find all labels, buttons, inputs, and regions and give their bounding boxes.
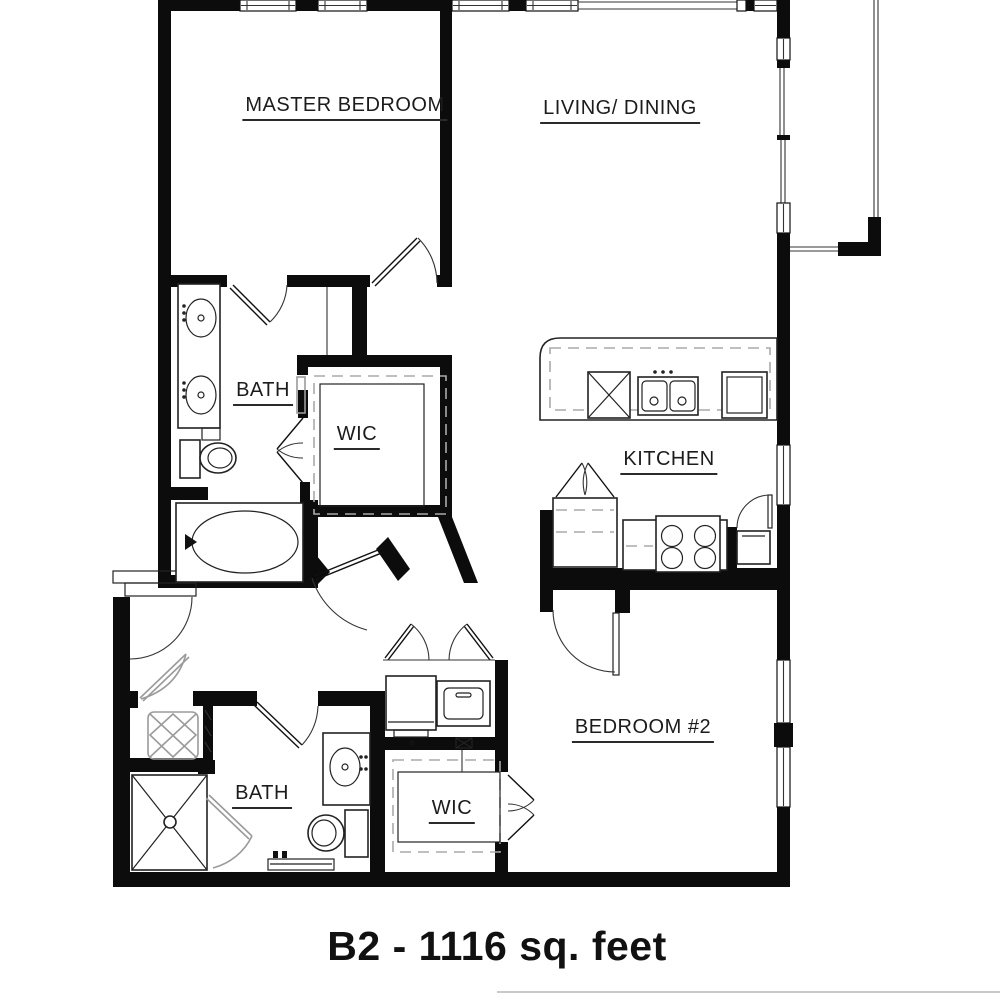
bath2-floor-vent [268, 851, 334, 870]
master-bedroom-door [372, 238, 437, 286]
floor-plan: MASTER BEDROOM LIVING/ DINING BATH WIC K… [0, 0, 1000, 1000]
label-master-bedroom: MASTER BEDROOM [242, 94, 447, 121]
bath2-vanity [323, 733, 370, 805]
master-vanity [178, 284, 220, 440]
balcony [790, 0, 881, 256]
kitchen-closet-cabinet [737, 531, 770, 564]
label-wic2: WIC [429, 797, 475, 824]
label-master-bath: BATH [233, 379, 293, 406]
label-living-dining: LIVING/ DINING [540, 97, 700, 124]
bath2-door [254, 702, 318, 748]
master-bath-door [230, 285, 287, 325]
label-bedroom2: BEDROOM #2 [572, 716, 714, 743]
bedroom2-door [553, 610, 619, 675]
label-kitchen: KITCHEN [620, 448, 717, 475]
master-toilet [180, 440, 236, 478]
refrigerator [722, 372, 767, 418]
plan-title: B2 - 1116 sq. feet [327, 923, 666, 970]
range-stove [623, 516, 727, 572]
bathtub [176, 503, 303, 582]
utility-closet-doors [383, 624, 495, 660]
entry-door [130, 597, 192, 659]
dishwasher [588, 372, 630, 418]
label-master-wic: WIC [334, 423, 380, 450]
wic2-double-doors [508, 775, 534, 840]
interior-walls [128, 11, 777, 873]
label-bath2: BATH [232, 782, 292, 809]
floor-plan-drawing [0, 0, 1000, 1000]
sheet-border-line [497, 991, 1000, 993]
water-heater [386, 676, 436, 746]
kitchen-double-sink [638, 370, 698, 415]
master-suite-hall-door [312, 548, 384, 630]
linen-closet [140, 654, 198, 759]
kitchen-closet-door [737, 495, 772, 528]
master-wic-double-doors [277, 418, 303, 483]
bath2-toilet [308, 810, 368, 857]
pantry [553, 463, 617, 567]
